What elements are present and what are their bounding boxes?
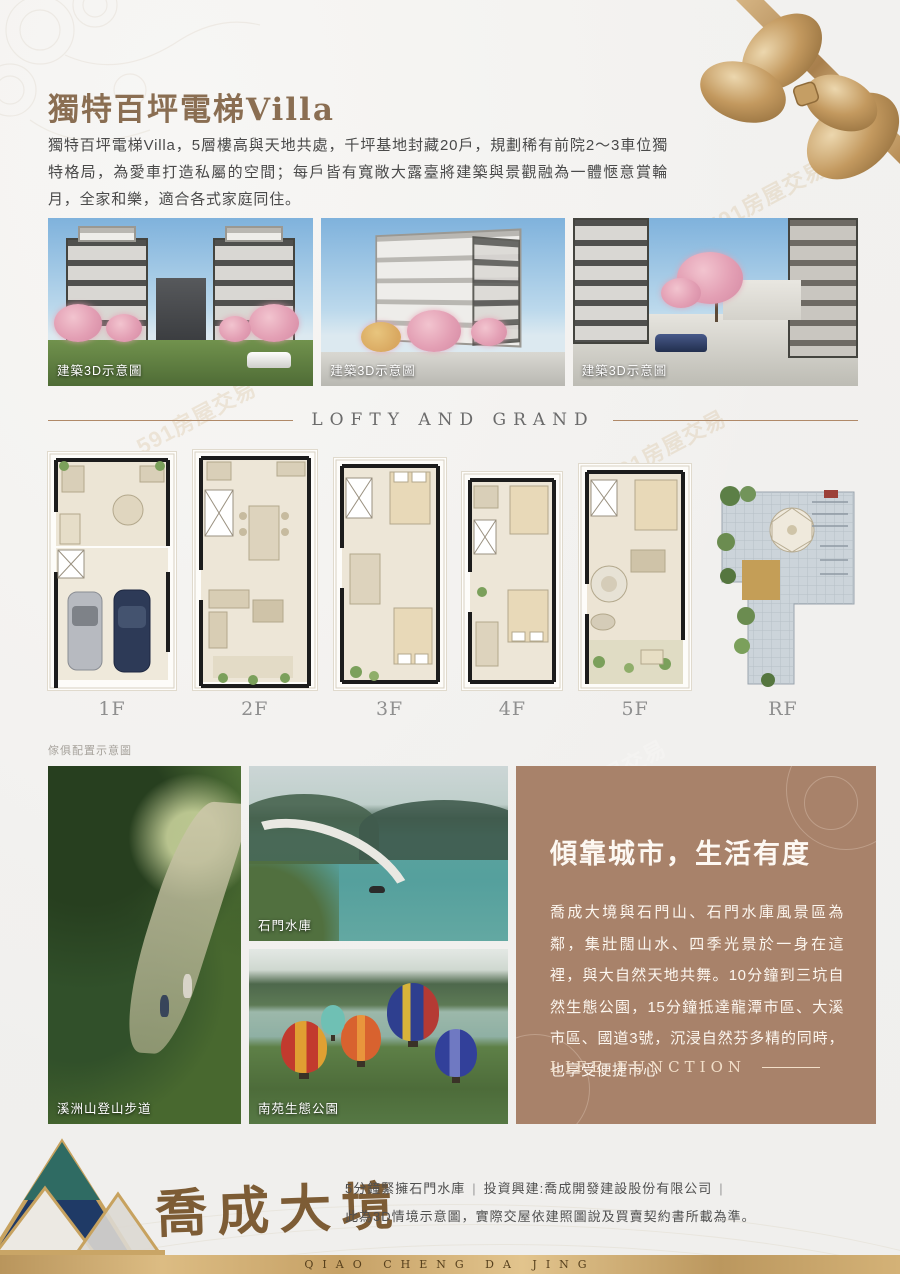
balloon: [387, 983, 439, 1041]
render-caption: 建築3D示意圖: [330, 360, 415, 379]
floorplan-3f: [334, 458, 446, 690]
floorplan-2f: [193, 450, 317, 690]
balloon-mascot: [321, 1005, 345, 1035]
hiker-figure: [183, 974, 192, 998]
photo-caption: 溪洲山登山步道: [57, 1098, 152, 1117]
floorplan-4f: [462, 472, 562, 690]
building-render-photo-2: 建築3D示意圖: [321, 218, 564, 386]
trail-path: [109, 800, 241, 1055]
floorplan-row: [48, 448, 858, 690]
hiker-figure: [160, 995, 169, 1017]
floor-label-1f: 1F: [48, 698, 176, 720]
separator: |: [712, 1181, 730, 1196]
render-caption: 建築3D示意圖: [582, 360, 667, 379]
floor-label-rf: RF: [708, 698, 858, 720]
floor-label-4f: 4F: [462, 698, 562, 720]
building-render-row: 建築3D示意圖 建築3D示意圖 建築3D示意圖: [48, 218, 858, 386]
photo-caption: 石門水庫: [258, 915, 312, 934]
panel-tagline: LIFE FUNCTION: [550, 1058, 820, 1076]
building-render-photo-3: 建築3D示意圖: [573, 218, 858, 386]
page-title: 獨特百坪電梯Villa: [48, 84, 335, 129]
photo-column: 石門水庫 南苑生態公園: [249, 766, 508, 1124]
brochure-page: 591房屋交易 591房屋交易 591房屋交易 591房屋交易 591房屋交易 …: [0, 0, 900, 1274]
divider-line-left: [48, 420, 293, 421]
bottom-gold-bar: QIAO CHENG DA JING: [0, 1255, 900, 1274]
section-divider: LOFTY AND GRAND: [48, 410, 858, 430]
footer-builder: 投資興建:喬成開發建設股份有限公司: [484, 1181, 713, 1196]
photo-shimen-reservoir: 石門水庫: [249, 766, 508, 941]
lifestyle-section: 溪洲山登山步道 石門水庫 南苑生態公園: [48, 766, 876, 1124]
floorplan-5f: [579, 464, 691, 690]
balloon: [435, 1029, 477, 1077]
furniture-note: 傢俱配置示意圖: [48, 742, 132, 758]
mountain-logo: [0, 1136, 165, 1258]
panel-tagline-text: LIFE FUNCTION: [550, 1058, 746, 1076]
floorplan-1f: [48, 452, 176, 690]
floorplan-rf-terrace: [708, 486, 858, 690]
floor-label-3f: 3F: [334, 698, 446, 720]
gold-ribbon-bow: [640, 0, 900, 235]
footer-info: 5分鐘緊擁石門水庫|投資興建:喬成開發建設股份有限公司| 此為3D情境示意圖，實…: [345, 1178, 756, 1225]
balloon: [281, 1021, 327, 1073]
building-render-photo-1: 建築3D示意圖: [48, 218, 313, 386]
tagline-line: [762, 1067, 820, 1068]
balloon: [341, 1015, 381, 1061]
floor-label-row: 1F 2F 3F 4F 5F RF: [48, 698, 858, 720]
divider-line-right: [613, 420, 858, 421]
photo-hiking-trail: 溪洲山登山步道: [48, 766, 241, 1124]
life-function-panel: 傾靠城市，生活有度 喬成大境與石門山、石門水庫風景區為鄰，集壯闊山水、四季光景於…: [516, 766, 876, 1124]
render-caption: 建築3D示意圖: [57, 360, 142, 379]
intro-paragraph: 獨特百坪電梯Villa，5層樓高與天地共處，千坪基地封藏20戶，規劃稀有前院2～…: [48, 132, 668, 213]
floor-label-5f: 5F: [579, 698, 691, 720]
footer-disclaimer: 此為3D情境示意圖，實際交屋依建照圖說及買賣契約書所載為準。: [345, 1206, 756, 1225]
romanized-brand: QIAO CHENG DA JING: [304, 1258, 595, 1271]
panel-title: 傾靠城市，生活有度: [550, 832, 844, 871]
photo-caption: 南苑生態公園: [258, 1098, 339, 1117]
footer-highlight: 5分鐘緊擁石門水庫: [345, 1181, 465, 1196]
separator: |: [465, 1181, 483, 1196]
floor-label-2f: 2F: [193, 698, 317, 720]
photo-hot-air-balloons: 南苑生態公園: [249, 949, 508, 1124]
divider-text: LOFTY AND GRAND: [311, 410, 594, 430]
